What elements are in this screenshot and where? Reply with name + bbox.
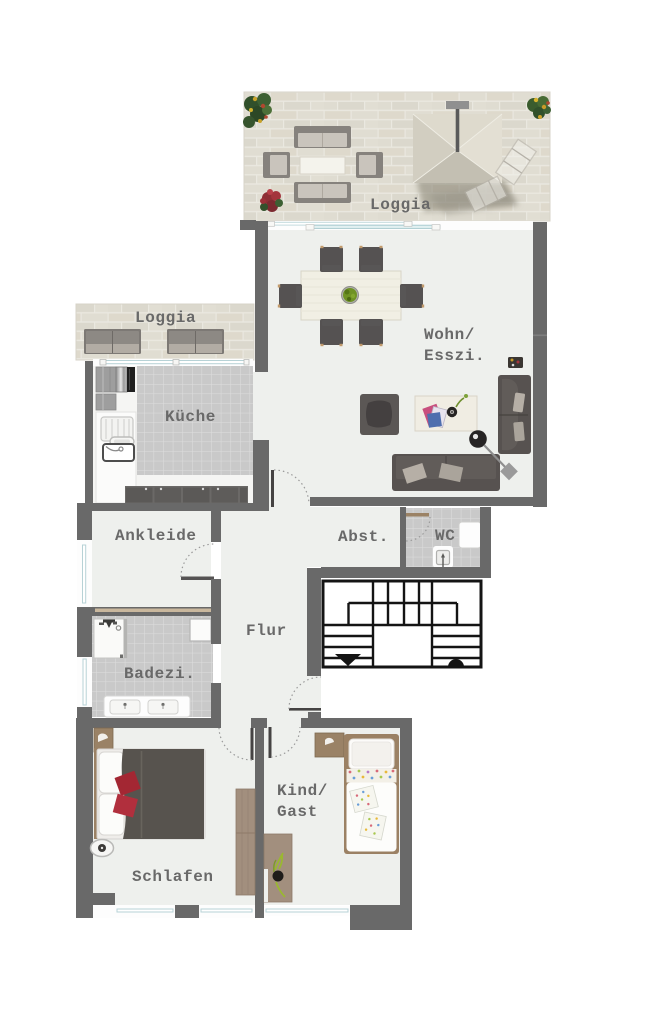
svg-text:Gast: Gast <box>277 803 318 821</box>
svg-text:Ankleide: Ankleide <box>115 527 197 545</box>
svg-text:Loggia: Loggia <box>370 196 431 214</box>
svg-text:Wohn/: Wohn/ <box>424 326 475 344</box>
svg-text:Loggia: Loggia <box>135 309 196 327</box>
svg-text:WC: WC <box>435 527 455 545</box>
svg-text:Schlafen: Schlafen <box>132 868 214 886</box>
svg-text:Kind/: Kind/ <box>277 782 328 800</box>
svg-text:Küche: Küche <box>165 408 216 426</box>
svg-text:Badezi.: Badezi. <box>124 665 195 683</box>
svg-text:Flur: Flur <box>246 622 287 640</box>
svg-text:Esszi.: Esszi. <box>424 347 485 365</box>
svg-text:Abst.: Abst. <box>338 528 389 546</box>
